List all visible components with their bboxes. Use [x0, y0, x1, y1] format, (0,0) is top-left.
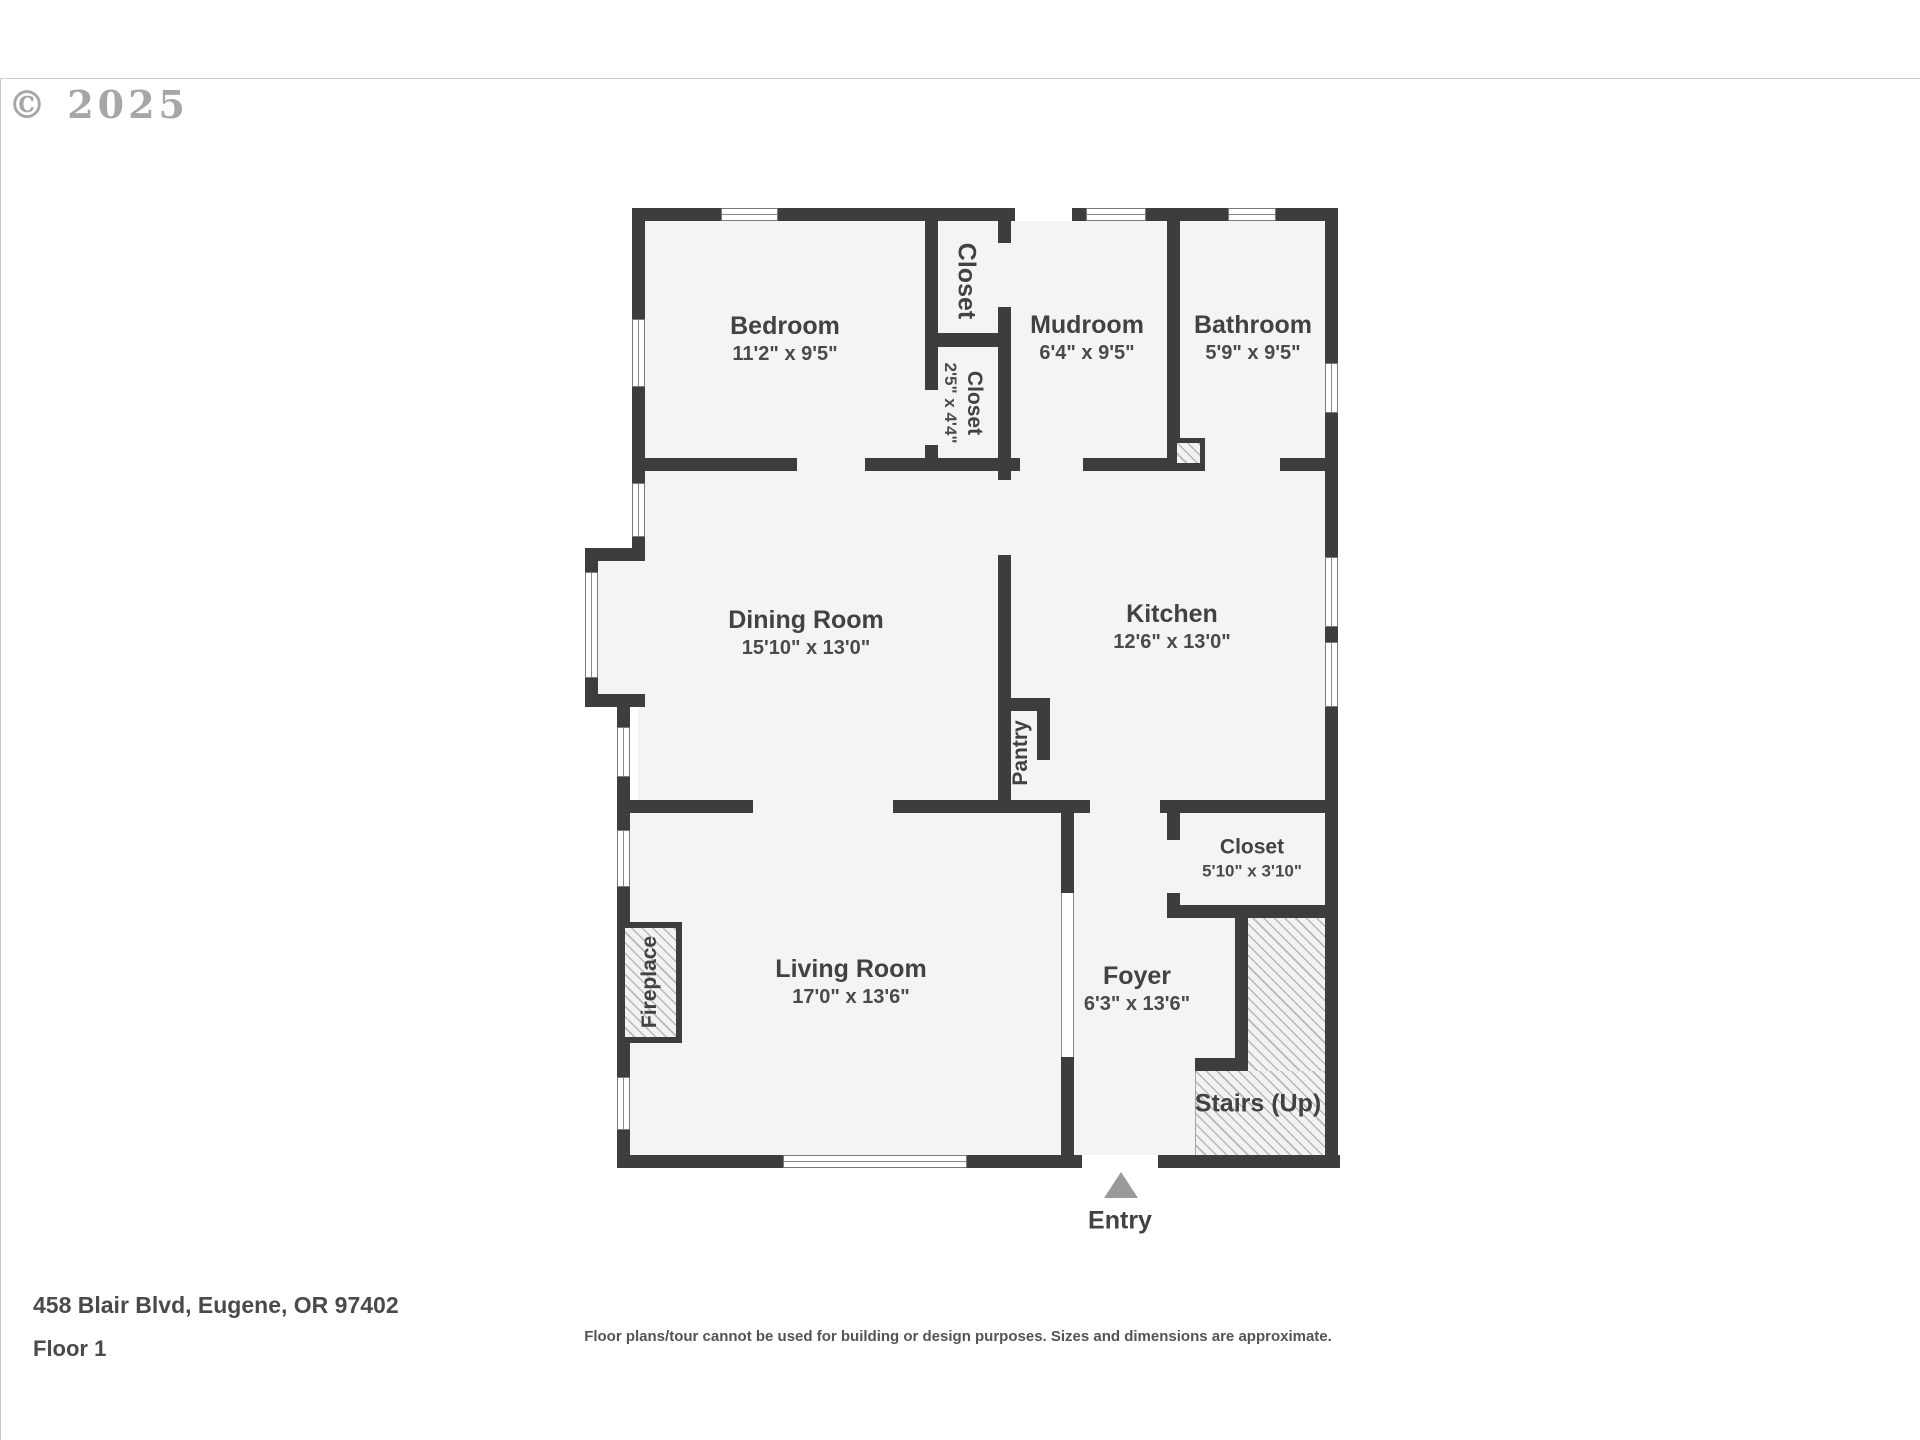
wall-bottom	[617, 1155, 1340, 1168]
wall-pantry-right	[1037, 698, 1050, 760]
room-label-mudroom: Mudroom6'4" x 9'5"	[1030, 310, 1144, 366]
window-living-west-2	[617, 1077, 630, 1130]
floorplan-canvas: Bedroom11'2" x 9'5" Closet Mudroom6'4" x…	[0, 0, 1920, 1440]
window-bedroom-north	[721, 208, 778, 221]
door-opening-bathroom	[1205, 458, 1280, 471]
window-mudroom-north	[1086, 208, 1146, 221]
wall-stairs-west	[1235, 918, 1248, 1071]
room-label-fireplace: Fireplace	[637, 936, 663, 1028]
room-fill-upper	[638, 214, 1332, 806]
door-opening-closet-top	[998, 243, 1011, 307]
room-label-living: Living Room17'0" x 13'6"	[775, 954, 926, 1010]
door-opening-mudroom-kitchen	[1020, 458, 1083, 471]
door-opening-bedroom-dining	[797, 458, 865, 471]
room-label-bedroom: Bedroom11'2" x 9'5"	[730, 311, 840, 367]
door-opening-closet-mid	[925, 390, 938, 445]
room-label-stairs: Stairs (Up)	[1195, 1088, 1321, 1119]
door-opening-kitchen-foyer	[1090, 800, 1160, 813]
window-bay-west	[585, 572, 598, 678]
floor-indicator: Floor 1	[33, 1336, 106, 1362]
wall-mid-divider-right	[1160, 800, 1335, 813]
window-dining-west	[632, 483, 645, 537]
wall-foyer-closet-bottom	[1167, 905, 1335, 918]
room-fill-bay	[591, 554, 651, 701]
disclaimer-text: Floor plans/tour cannot be used for buil…	[584, 1328, 1332, 1345]
room-label-closet-top: Closet	[950, 243, 981, 319]
window-living-south	[783, 1155, 967, 1168]
entry-label: Entry	[1088, 1205, 1152, 1236]
room-label-pantry: Pantry	[1008, 720, 1034, 785]
window-kitchen-east-1	[1325, 557, 1338, 627]
window-bathroom-north	[1228, 208, 1276, 221]
door-opening-living-dining	[753, 800, 893, 813]
stairs-hatch-upper	[1248, 918, 1325, 1071]
door-opening-foyer-closet	[1167, 840, 1180, 893]
window-bathroom-east	[1325, 363, 1338, 413]
window-kitchen-east-2	[1325, 642, 1338, 707]
wall-mudroom-bathroom	[1167, 221, 1180, 471]
window-bedroom-west	[632, 319, 645, 387]
door-opening-mudroom-exterior	[1015, 208, 1072, 221]
room-label-foyer: Foyer6'3" x 13'6"	[1084, 961, 1190, 1017]
room-label-closet-foyer: Closet5'10" x 3'10"	[1202, 834, 1302, 882]
floorplan-page: © 2025	[0, 0, 1920, 1440]
window-dining-southwest	[617, 727, 630, 777]
wall-mid-divider-left	[617, 800, 753, 813]
cased-opening-living-foyer	[1061, 893, 1074, 1057]
room-label-kitchen: Kitchen12'6" x 13'0"	[1113, 599, 1230, 655]
chimney-box	[1172, 438, 1205, 468]
room-label-closet-mid: Closet2'5" x 4'4"	[939, 363, 987, 444]
property-address: 458 Blair Blvd, Eugene, OR 97402	[33, 1292, 399, 1319]
door-opening-entry	[1082, 1155, 1158, 1168]
door-opening-dining-kitchen	[998, 480, 1011, 555]
room-label-dining: Dining Room15'10" x 13'0"	[728, 605, 884, 661]
window-living-west-1	[617, 830, 630, 887]
entry-arrow-icon	[1104, 1172, 1138, 1198]
room-label-bathroom: Bathroom5'9" x 9'5"	[1194, 310, 1312, 366]
